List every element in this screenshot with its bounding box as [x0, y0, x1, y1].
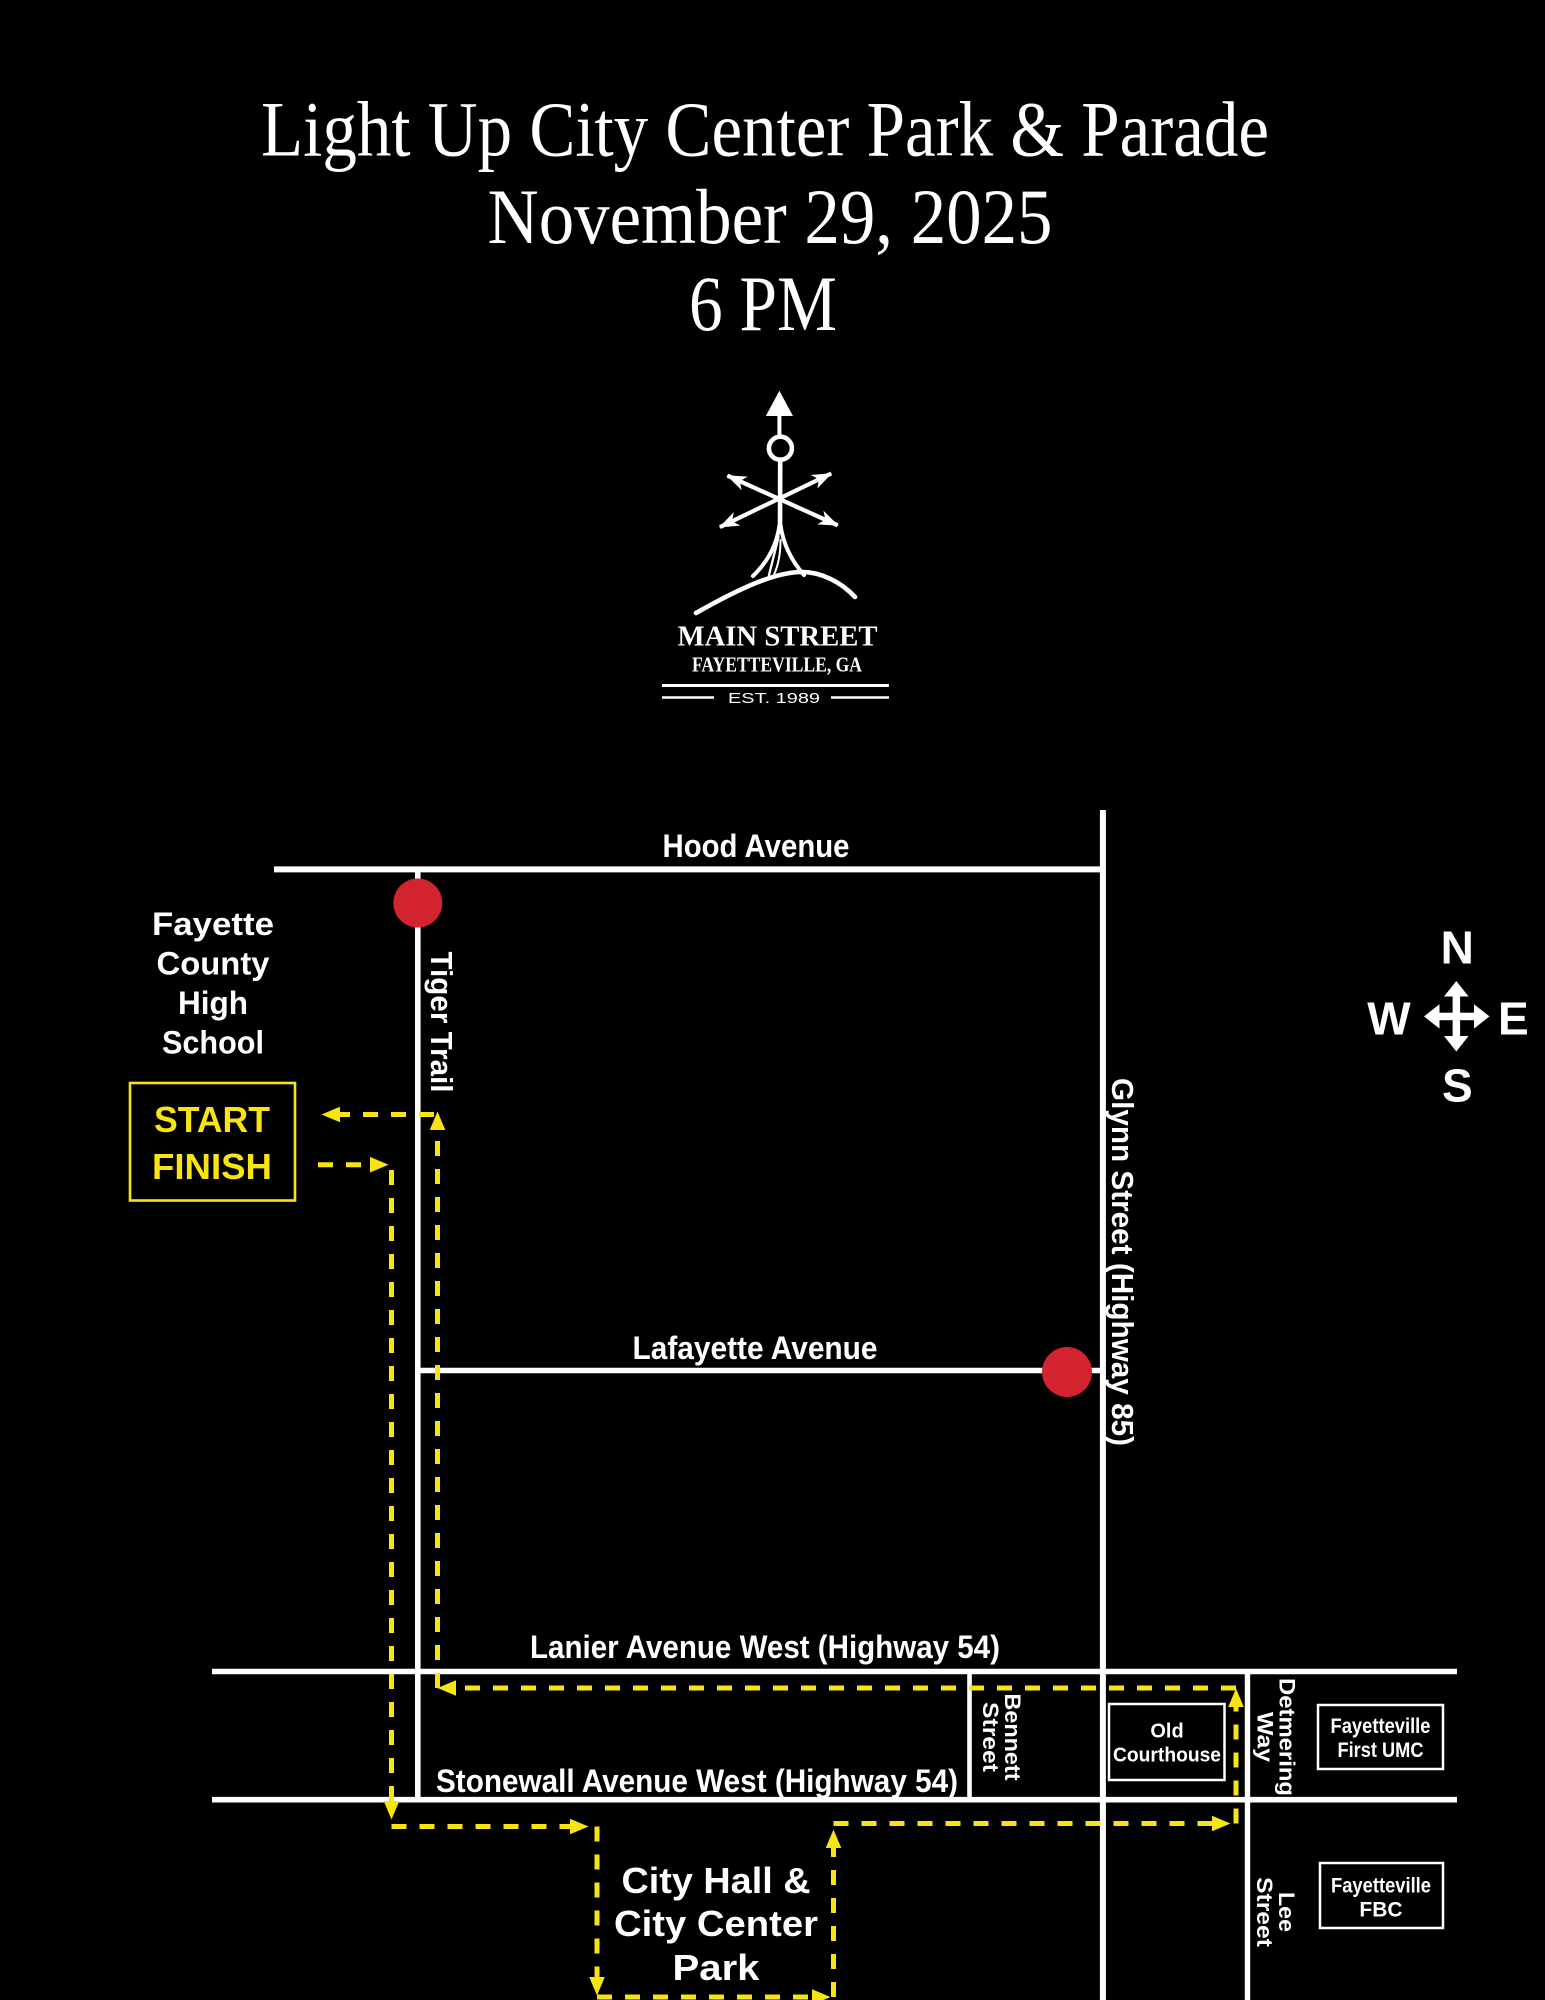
svg-text:City Hall &: City Hall &: [622, 1860, 811, 1901]
svg-text:Courthouse: Courthouse: [1113, 1745, 1221, 1767]
svg-text:FINISH: FINISH: [152, 1146, 272, 1187]
svg-text:School: School: [162, 1025, 264, 1061]
svg-text:6 PM: 6 PM: [689, 260, 837, 347]
svg-text:Light Up City Center Park & Pa: Light Up City Center Park & Parade: [261, 86, 1269, 173]
svg-text:First UMC: First UMC: [1338, 1739, 1424, 1762]
svg-text:S: S: [1442, 1060, 1473, 1112]
svg-text:November 29, 2025: November 29, 2025: [488, 173, 1053, 260]
svg-text:EST. 1989: EST. 1989: [728, 690, 820, 707]
svg-text:Lafayette Avenue: Lafayette Avenue: [633, 1330, 878, 1366]
svg-text:W: W: [1367, 993, 1411, 1045]
svg-text:City Center: City Center: [614, 1903, 818, 1944]
svg-text:Fayetteville: Fayetteville: [1331, 1875, 1431, 1898]
svg-text:Tiger Trail: Tiger Trail: [424, 952, 459, 1093]
svg-text:Street: Street: [1252, 1877, 1277, 1948]
svg-text:MAIN STREET: MAIN STREET: [678, 621, 878, 653]
svg-text:Way: Way: [1253, 1712, 1278, 1763]
svg-text:Park: Park: [673, 1947, 761, 1988]
svg-text:FAYETTEVILLE, GA: FAYETTEVILLE, GA: [692, 653, 863, 677]
svg-text:Glynn Street (Highway 85): Glynn Street (Highway 85): [1105, 1078, 1140, 1446]
svg-text:Old: Old: [1150, 1721, 1183, 1743]
svg-text:Fayetteville: Fayetteville: [1331, 1715, 1431, 1738]
svg-text:Stonewall Avenue West (Highway: Stonewall Avenue West (Highway 54): [436, 1763, 958, 1799]
svg-text:High: High: [178, 985, 248, 1021]
svg-text:Street: Street: [978, 1702, 1003, 1773]
svg-text:County: County: [157, 946, 270, 982]
svg-text:E: E: [1498, 993, 1529, 1045]
svg-text:N: N: [1441, 922, 1474, 974]
svg-text:Hood Avenue: Hood Avenue: [663, 828, 850, 864]
svg-text:Lanier Avenue West (Highway 54: Lanier Avenue West (Highway 54): [530, 1629, 1000, 1665]
svg-text:Fayette: Fayette: [152, 906, 274, 942]
svg-text:FBC: FBC: [1359, 1899, 1402, 1922]
svg-text:START: START: [154, 1099, 270, 1140]
